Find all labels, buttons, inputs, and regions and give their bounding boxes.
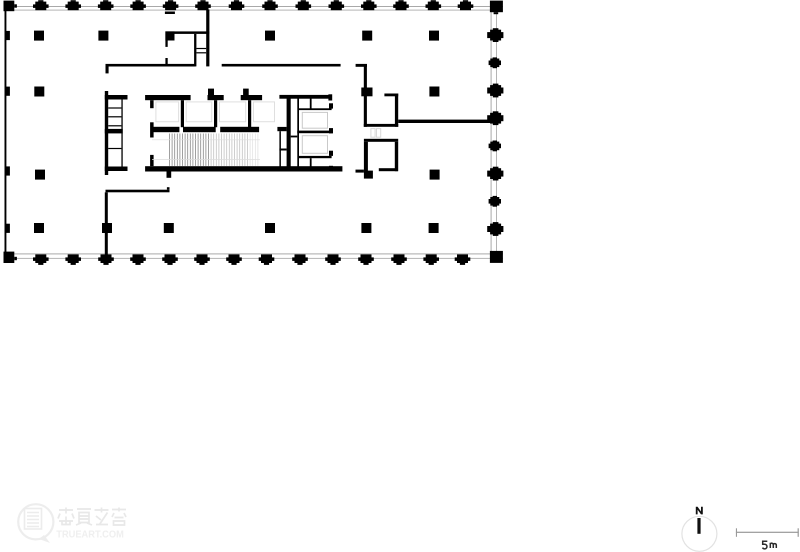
svg-text:TRUEART.COM: TRUEART.COM [56, 529, 124, 540]
